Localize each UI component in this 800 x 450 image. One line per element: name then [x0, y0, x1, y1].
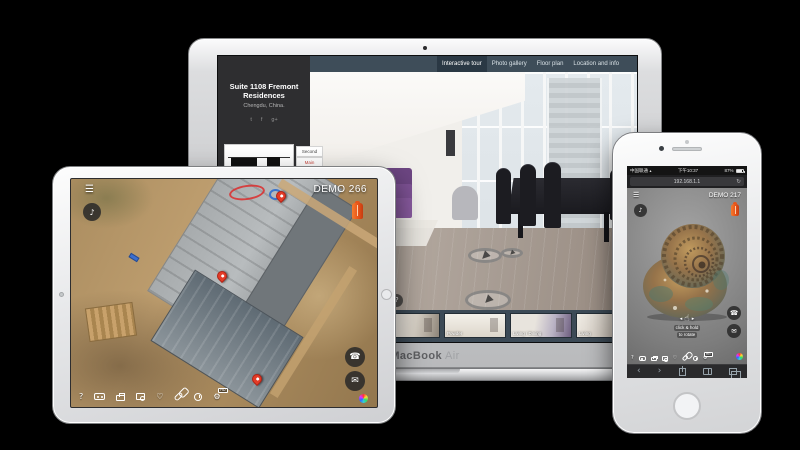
url-field[interactable]: 192.168.1.1 ↻ [630, 177, 744, 186]
tab-photo-gallery[interactable]: Photo gallery [487, 56, 532, 72]
aerial-material-stack [85, 302, 137, 342]
settings-icon[interactable]: ⚙HD [703, 356, 707, 361]
share-link-icon[interactable] [682, 355, 689, 362]
favorite-icon[interactable]: ♡ [156, 393, 163, 401]
message-button[interactable]: ✉ [727, 324, 741, 338]
property-location: Chengdu, China. [218, 103, 310, 109]
iphone-sensor-dot [685, 140, 689, 144]
vr-goggles-icon[interactable] [639, 356, 646, 361]
scene: ? Interactive tour Photo gallery Floor p… [0, 0, 800, 450]
demo-label: DEMO 266 [314, 184, 367, 195]
ios-status-bar: 中国联通 ▴ 下午10:37 87% [627, 166, 747, 175]
wall-art [446, 130, 455, 156]
property-title: Suite 1108 Fremont Residences [218, 82, 310, 100]
menu-icon[interactable]: ☰ [633, 191, 639, 199]
help-icon[interactable]: ? [79, 393, 83, 401]
ipad-home-button[interactable] [381, 289, 392, 300]
arrow-left-icon: ◂ [680, 316, 683, 322]
dining-chair [544, 162, 561, 228]
music-note-icon: ♪ [639, 207, 643, 214]
hd-badge: HD [218, 388, 227, 394]
call-button[interactable]: ☎ [345, 347, 365, 367]
viewer-toolbar: ? ♡ ⚙HD [79, 392, 221, 401]
aerial-vegetation [70, 178, 154, 229]
fossil-3d-model[interactable] [635, 218, 739, 322]
history-icon[interactable] [693, 356, 698, 361]
safari-address-bar: 192.168.1.1 ↻ [627, 175, 747, 188]
floor-button-second[interactable]: Second [296, 146, 323, 157]
carrier-label: 中国联通 [630, 168, 648, 174]
hydrant-icon[interactable] [731, 204, 739, 216]
floor-selector: Second Main [296, 146, 323, 168]
tabs-icon[interactable] [729, 368, 737, 375]
table-leg [604, 212, 609, 242]
vr-goggles-icon[interactable] [94, 393, 105, 400]
battery-icon [736, 169, 744, 173]
print-icon[interactable] [651, 357, 657, 361]
google-plus-icon[interactable]: g+ [271, 117, 277, 123]
macbook-lid-notch [388, 369, 460, 374]
dining-chair [520, 164, 536, 226]
share-link-icon[interactable] [174, 392, 184, 402]
ipad-device: ☰ ♪ DEMO 266 ☎ ✉ ? ♡ ⚙HD [52, 166, 396, 424]
hand-gesture-icon: ☝ [684, 314, 689, 324]
iphone-device: 中国联通 ▴ 下午10:37 87% 192.168.1.1 ↻ ☰ D [612, 132, 762, 434]
phone-icon: ☎ [730, 309, 738, 317]
bookmarks-icon[interactable] [703, 368, 712, 375]
history-icon[interactable] [194, 393, 202, 401]
print-icon[interactable] [116, 395, 125, 401]
tab-interactive-tour[interactable]: Interactive tour [437, 56, 487, 72]
scene-thumbnail[interactable]: Living / Dining [510, 313, 572, 338]
hint-line-1: click & hold [674, 325, 701, 331]
tour-nav-bar: Interactive tour Photo gallery Floor pla… [310, 56, 638, 72]
settings-icon[interactable]: ⚙HD [213, 393, 220, 401]
webcam-dot [423, 46, 427, 50]
url-text: 192.168.1.1 [674, 179, 700, 185]
scene-thumbnail[interactable]: Powder [444, 313, 506, 338]
dining-chair [496, 168, 511, 224]
facebook-icon[interactable]: f [261, 117, 263, 123]
brand-light: Air [445, 350, 460, 362]
walk-hotspot[interactable] [465, 290, 511, 310]
twitter-icon[interactable]: t [250, 117, 252, 123]
aerial-truck [128, 253, 139, 263]
walk-hotspot[interactable] [468, 248, 502, 263]
hotspot-arrow-icon [482, 294, 493, 305]
iphone-camera-dot [659, 146, 664, 151]
demo-label: DEMO 217 [709, 192, 741, 199]
music-note-icon: ♪ [89, 208, 94, 217]
camera-icon[interactable] [136, 393, 145, 400]
battery-percent: 87% [724, 168, 733, 173]
tab-location-info[interactable]: Location and info [568, 56, 624, 72]
wifi-icon: ▴ [650, 168, 652, 173]
color-wheel-icon[interactable] [736, 353, 743, 360]
iphone-home-button[interactable] [673, 392, 701, 420]
walk-hotspot[interactable] [501, 248, 523, 258]
favorite-icon[interactable]: ♡ [673, 356, 677, 361]
viewer-toolbar: ? ♡ ⚙HD [631, 355, 708, 361]
envelope-icon: ✉ [351, 376, 359, 386]
thumbnail-label: Living / Dining [513, 331, 541, 336]
safari-toolbar: ‹ › [627, 364, 747, 378]
social-links: t f g+ [218, 117, 310, 123]
clock-label: 下午10:37 [678, 168, 698, 174]
ipad-camera-dot [59, 292, 64, 297]
hotspot-arrow-icon [509, 250, 516, 257]
back-icon[interactable]: ‹ [637, 367, 641, 376]
forward-icon[interactable]: › [658, 367, 662, 376]
message-button[interactable]: ✉ [345, 371, 365, 391]
color-wheel-icon[interactable] [359, 394, 368, 403]
call-button[interactable]: ☎ [727, 306, 741, 320]
share-icon[interactable] [679, 368, 686, 376]
phone-icon: ☎ [349, 352, 360, 362]
hint-line-2: to rotate [677, 332, 698, 338]
tab-floor-plan[interactable]: Floor plan [532, 56, 569, 72]
iphone-earpiece [672, 147, 702, 151]
refresh-icon[interactable]: ↻ [736, 179, 741, 185]
arrow-right-icon: ▸ [692, 316, 695, 322]
hydrant-icon[interactable] [352, 203, 363, 219]
brand-bold: MacBook [390, 350, 442, 362]
thumbnail-label: Powder [447, 331, 462, 336]
menu-icon[interactable]: ☰ [85, 184, 94, 195]
music-button[interactable]: ♪ [83, 203, 101, 221]
object-viewer: ☰ DEMO 217 ♪ [627, 188, 747, 364]
thumbnail-label: Living [579, 331, 591, 336]
hotspot-arrow-icon [479, 250, 490, 261]
ipad-screen: ☰ ♪ DEMO 266 ☎ ✉ ? ♡ ⚙HD [70, 178, 378, 408]
music-button[interactable]: ♪ [634, 204, 647, 217]
hd-badge: HD [704, 352, 713, 357]
iphone-screen: 中国联通 ▴ 下午10:37 87% 192.168.1.1 ↻ ☰ D [627, 166, 747, 378]
envelope-icon: ✉ [731, 327, 736, 335]
armchair [452, 186, 478, 220]
camera-icon[interactable] [662, 356, 668, 361]
help-icon[interactable]: ? [631, 356, 634, 361]
